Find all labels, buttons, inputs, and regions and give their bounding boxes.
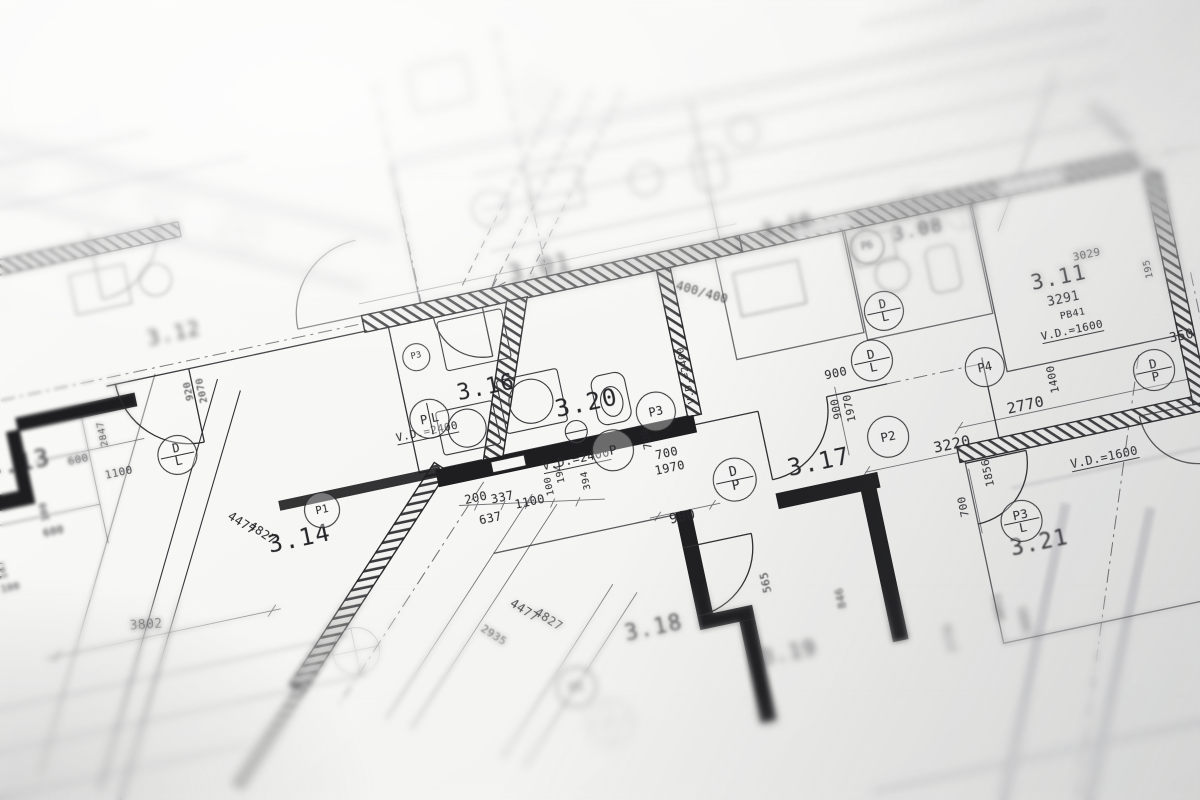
blueprint-photo: 3.013.123.103.083.113.133.163.203.173.14…	[0, 0, 1200, 800]
dimension-lines	[0, 46, 1200, 800]
floorplan-sheet: 3.013.123.103.083.113.133.163.203.173.14…	[0, 0, 1200, 800]
walls-dark	[0, 245, 923, 800]
dimension-text: 3802	[129, 618, 163, 633]
